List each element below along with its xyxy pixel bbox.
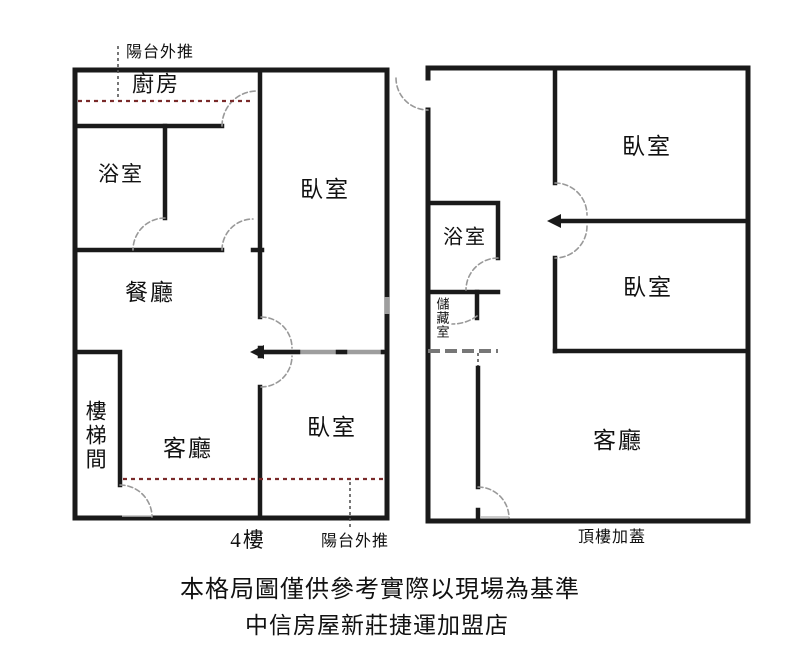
floorplan-image: 陽台外推 廚房 浴室 臥室 餐廳 樓梯間 客廳 臥室 4樓 陽台外推 臥室 浴室… — [0, 0, 800, 659]
storage-door-arc — [452, 316, 477, 324]
bedroom2-door-arc — [555, 226, 587, 258]
bedroom-upper-door-arc — [261, 317, 292, 348]
room-label-bathroom-left: 浴室 — [98, 162, 144, 186]
wall-end-cap — [547, 214, 561, 228]
right-plan-walls — [428, 68, 748, 521]
room-label-kitchen: 廚房 — [132, 71, 180, 96]
disclaimer-text: 本格局圖僅供參考實際以現場為基準 — [180, 577, 580, 605]
balcony-note-top: 陽台外推 — [126, 44, 194, 62]
room-label-bedroom-lower-left: 臥室 — [307, 415, 357, 441]
bedroom-lower-door-arc — [261, 356, 292, 387]
hallway-door-arc — [222, 219, 253, 250]
room-label-stairwell: 樓梯間 — [83, 400, 107, 472]
agency-text: 中信房屋新莊捷運加盟店 — [245, 613, 509, 639]
room-label-bedroom-upper-left: 臥室 — [300, 177, 350, 203]
bathroom-door-arc — [133, 218, 165, 250]
room-label-bathroom-right: 浴室 — [443, 227, 487, 250]
wall-end-cap — [250, 345, 264, 359]
room-label-storage: 儲藏室 — [434, 297, 449, 339]
right-plan-door-arcs — [396, 78, 587, 518]
room-label-living-left: 客廳 — [163, 436, 213, 462]
floorplan-drawing — [0, 0, 800, 659]
kitchen-door-arc — [222, 91, 257, 126]
room-label-living-right: 客廳 — [593, 428, 643, 454]
room-label-bedroom1-right: 臥室 — [622, 134, 672, 160]
stairwell-door-arc — [120, 485, 152, 517]
balcony-note-bottom: 陽台外推 — [321, 533, 389, 551]
room-label-dining: 餐廳 — [125, 280, 175, 306]
floor-label-rooftop: 頂樓加蓋 — [578, 529, 646, 547]
floor-label-4f: 4樓 — [230, 528, 266, 552]
left-plan-walls — [75, 70, 387, 518]
living-door-arc — [478, 487, 509, 518]
bedroom1-door-arc — [555, 183, 587, 215]
room-label-bedroom2-right: 臥室 — [623, 275, 673, 301]
bathroom-door-arc — [466, 258, 498, 290]
entry-door-arc — [396, 78, 428, 110]
